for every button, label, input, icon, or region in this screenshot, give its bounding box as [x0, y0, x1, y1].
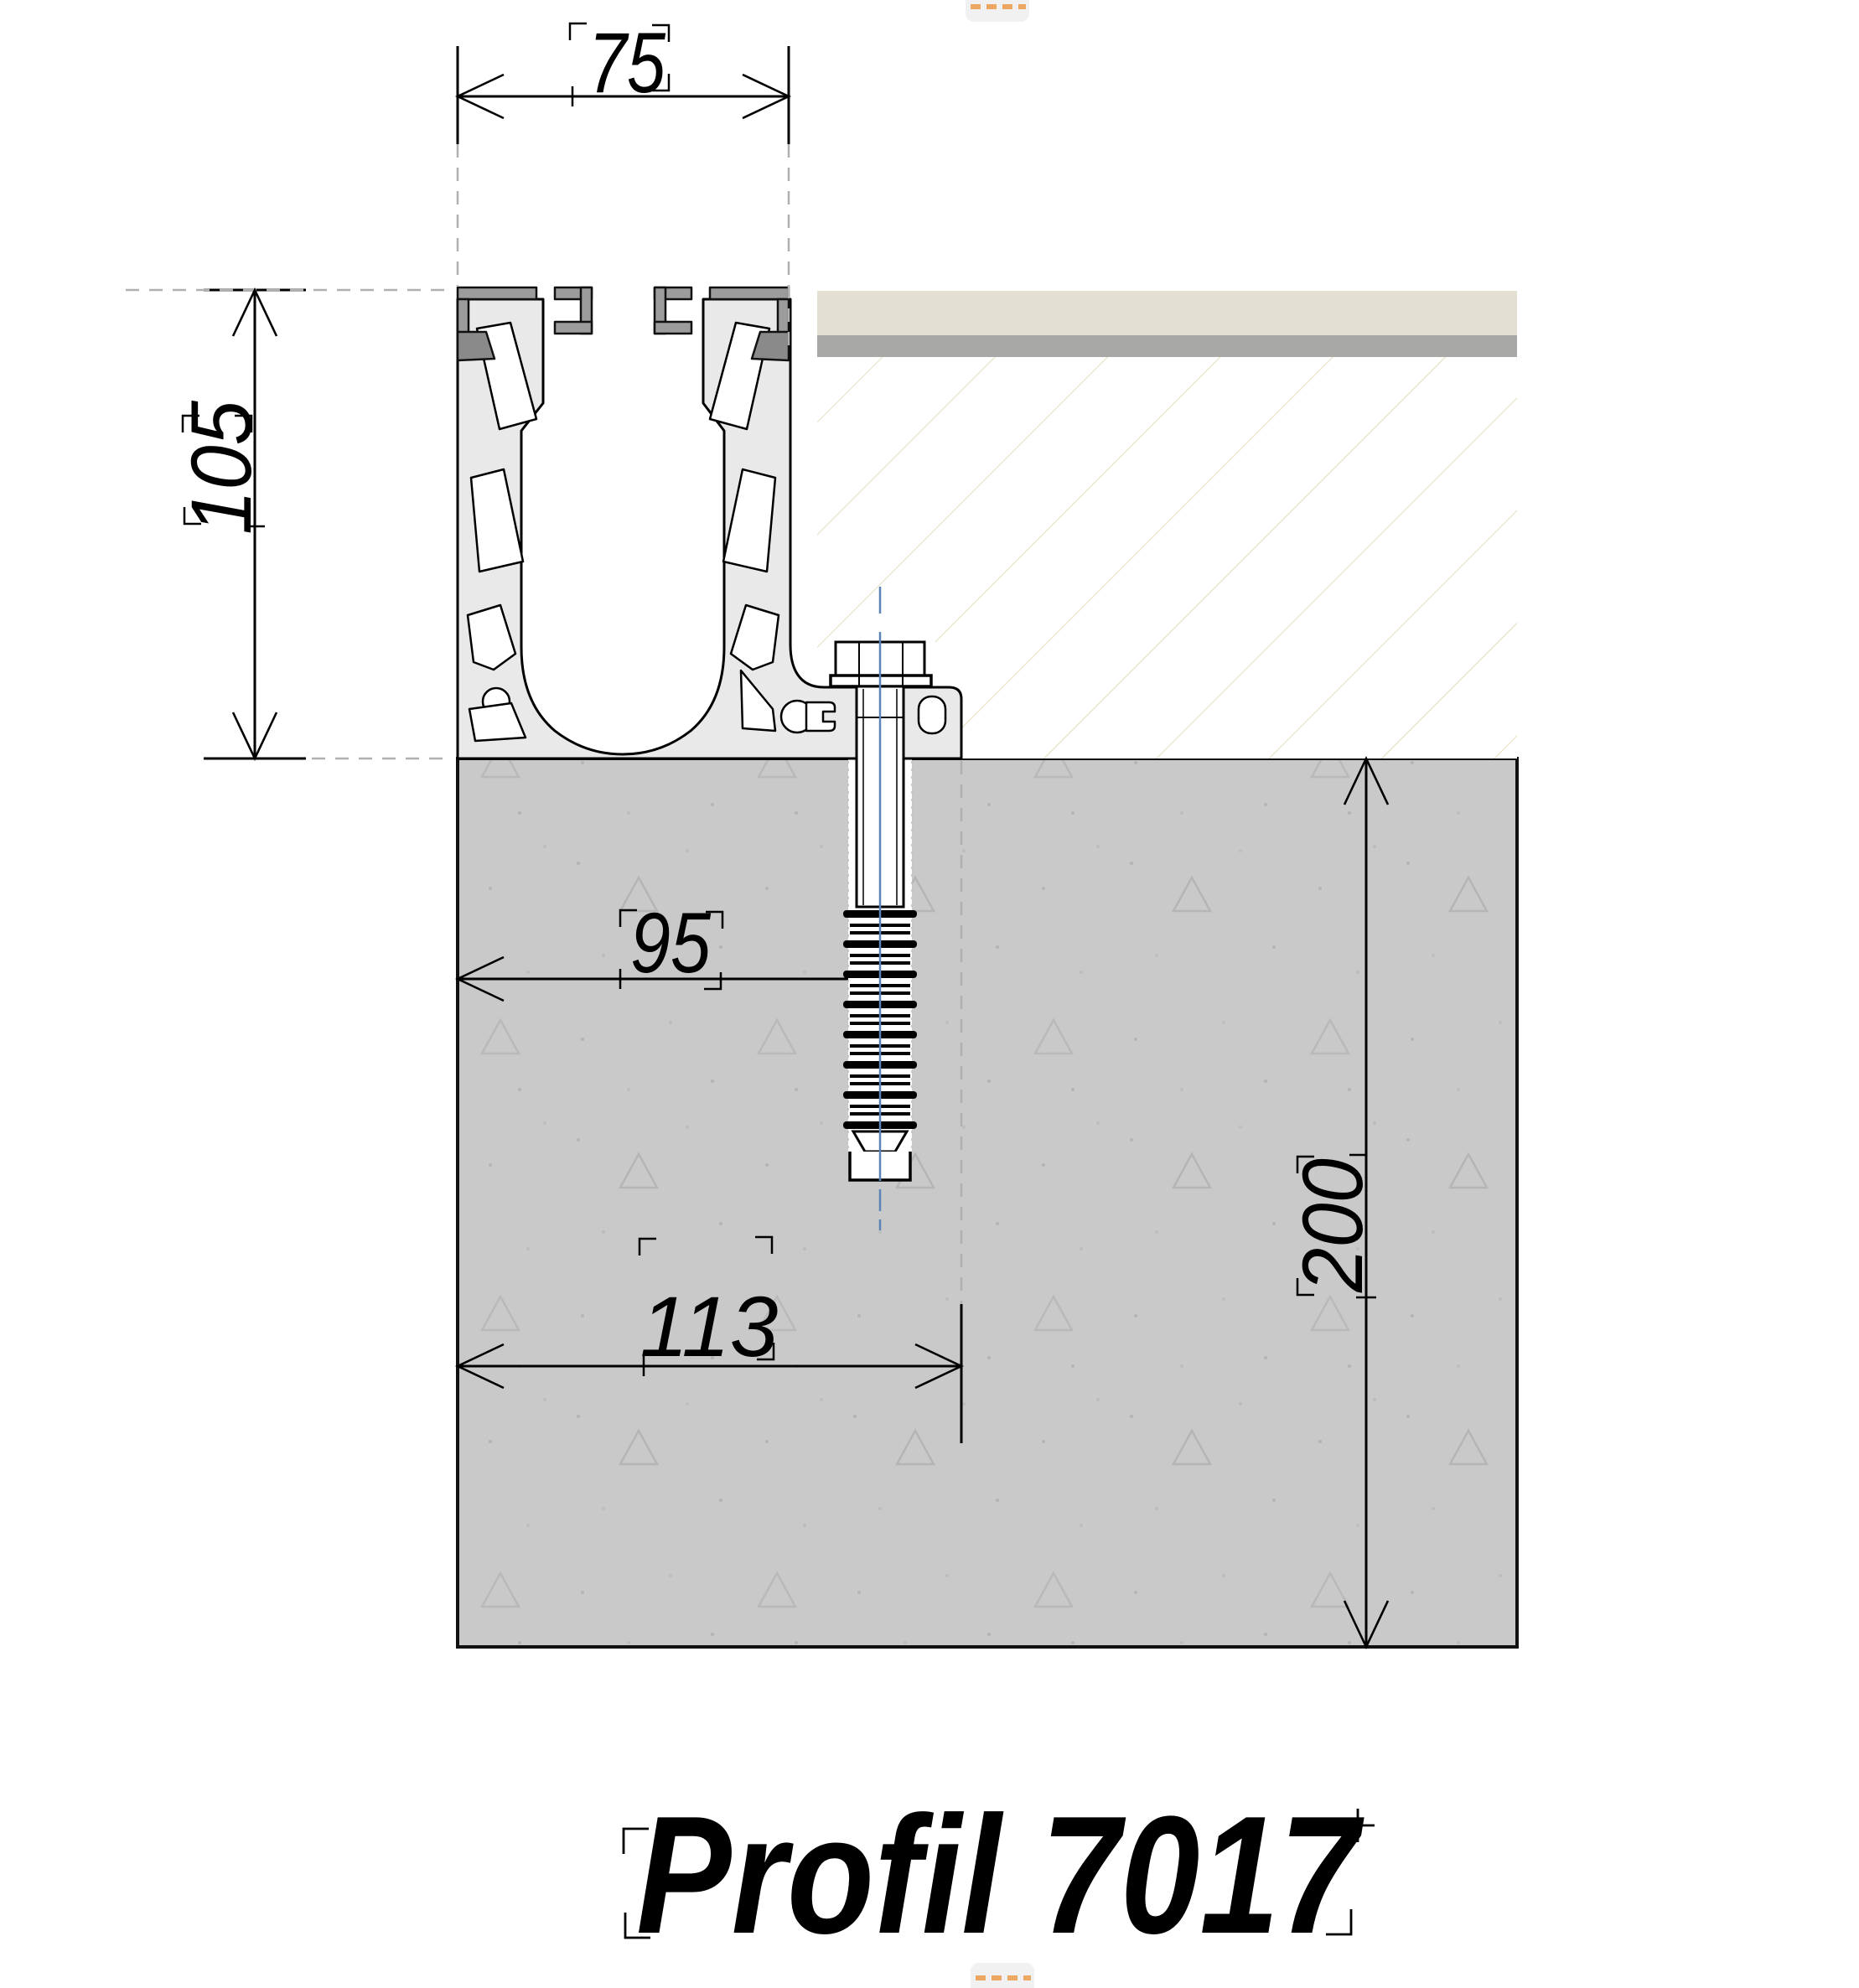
dim-113-label[interactable]: 113 — [640, 1279, 779, 1375]
top-drag-handle[interactable] — [966, 0, 1029, 22]
dim-75-label[interactable]: 75 — [588, 15, 665, 111]
slab-finish-layer — [817, 291, 1517, 335]
slab-screed-layer — [817, 335, 1517, 357]
technical-drawing: 95 — [0, 0, 1859, 1988]
title-label[interactable]: Profil 7017 — [636, 1782, 1364, 1969]
dim-95-label[interactable]: 95 — [630, 895, 711, 991]
drawing-canvas: 95 — [0, 0, 1859, 1988]
dim-105-label[interactable]: 105 — [173, 401, 269, 535]
drawing-title: Profil 7017 — [624, 1782, 1375, 1969]
dim-200-label[interactable]: 200 — [1285, 1158, 1380, 1293]
dimension-105: 105 — [126, 290, 451, 758]
